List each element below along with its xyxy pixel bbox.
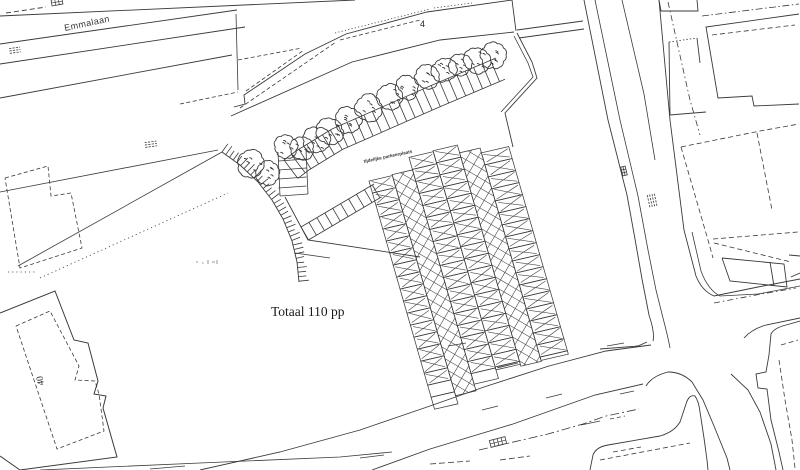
svg-text:Totaal 110 pp: Totaal 110 pp [271,304,345,319]
svg-text:40: 40 [35,375,47,386]
svg-text:4: 4 [420,19,425,29]
